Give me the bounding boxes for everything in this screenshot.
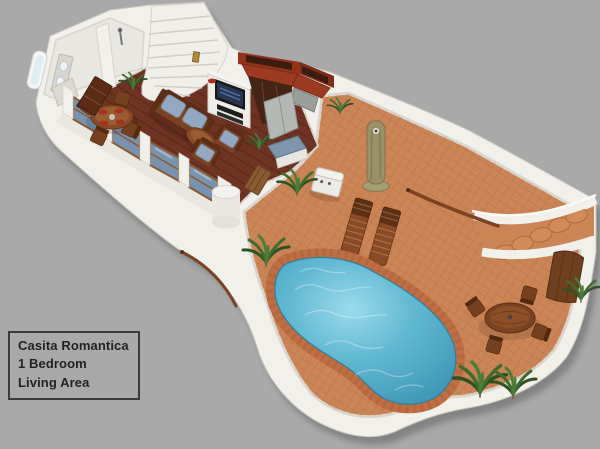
wall-art	[192, 52, 199, 63]
curved-wall-end	[212, 186, 240, 229]
floor-plan-rendering: Casita Romantica 1 Bedroom Living Area	[0, 0, 600, 449]
label-area: Living Area	[18, 374, 129, 392]
label-box: Casita Romantica 1 Bedroom Living Area	[8, 331, 140, 400]
label-bedrooms: 1 Bedroom	[18, 355, 129, 373]
decor-bowl	[208, 79, 216, 84]
label-title: Casita Romantica	[18, 337, 129, 355]
